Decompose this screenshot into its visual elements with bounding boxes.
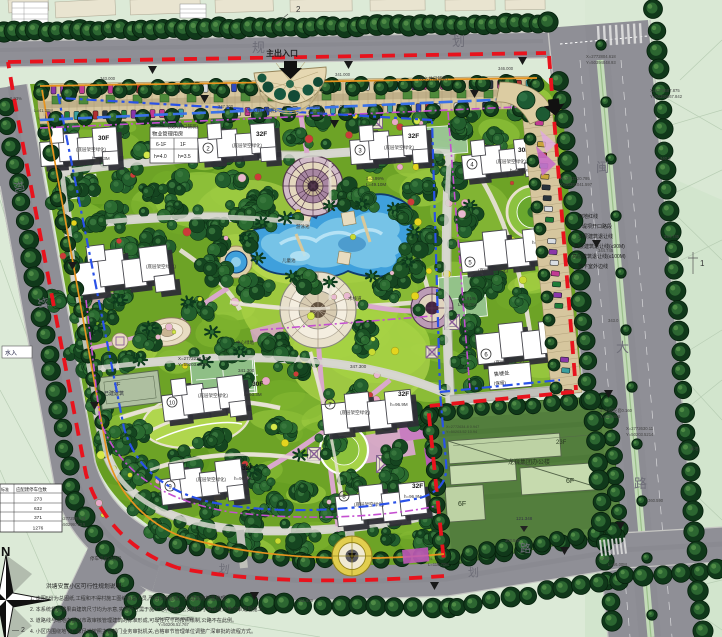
svg-text:121.348: 121.348 xyxy=(516,516,533,521)
svg-text:(底层架空绿化): (底层架空绿化) xyxy=(340,409,370,416)
svg-text:32F: 32F xyxy=(412,483,423,490)
svg-text:N: N xyxy=(1,544,10,559)
svg-text:h=93.3M: h=93.3M xyxy=(510,168,528,173)
svg-text:(底层架空绿化): (底层架空绿化) xyxy=(76,146,106,153)
svg-text:6F: 6F xyxy=(458,501,466,508)
svg-text:路: 路 xyxy=(520,542,531,555)
svg-text:344.745: 344.745 xyxy=(664,234,680,239)
svg-text:343.0: 343.0 xyxy=(608,318,619,323)
svg-text:(底层架空绿化): (底层架空绿化) xyxy=(232,142,262,149)
svg-text:343.000: 343.000 xyxy=(100,76,116,81)
svg-text:规: 规 xyxy=(252,40,265,55)
svg-text:30F: 30F xyxy=(98,135,109,142)
svg-text:L=66.00M: L=66.00M xyxy=(608,562,627,567)
svg-text:371: 371 xyxy=(34,515,42,521)
svg-text:划: 划 xyxy=(468,566,479,579)
svg-text:X=2772238.525: X=2772238.525 xyxy=(178,356,210,361)
svg-text:32F: 32F xyxy=(408,133,419,140)
svg-text:X=2772634.8 0.947: X=2772634.8 0.947 xyxy=(446,425,479,429)
svg-text:标准: 标准 xyxy=(1,486,9,492)
svg-text:高地: 高地 xyxy=(690,445,699,452)
svg-text:洪塘安置小区可行性规划说明:: 洪塘安置小区可行性规划说明: xyxy=(46,582,123,590)
svg-text:L=86.0m: L=86.0m xyxy=(458,302,476,307)
svg-text:(残入井口铺装): (残入井口铺装) xyxy=(418,75,448,82)
svg-text:L=49.10M: L=49.10M xyxy=(366,182,386,187)
svg-text:X=2772320.795: X=2772320.795 xyxy=(560,176,590,181)
svg-text:应配建停车位数: 应配建停车位数 xyxy=(16,486,47,493)
svg-text:6-1F: 6-1F xyxy=(156,142,166,148)
svg-text:堤坝开口路段: 堤坝开口路段 xyxy=(582,223,612,230)
svg-text:4=小区配套0.160: 4=小区配套0.160 xyxy=(600,407,633,414)
svg-text:地下室外边线: 地下室外边线 xyxy=(578,263,608,270)
svg-text:路: 路 xyxy=(634,476,647,491)
svg-text:362.540: 362.540 xyxy=(505,538,521,543)
svg-text:Y=50203.52 10.94: Y=50203.52 10.94 xyxy=(446,430,477,434)
svg-text:23F: 23F xyxy=(556,440,567,446)
svg-text:h=96.9M: h=96.9M xyxy=(234,476,252,481)
svg-text:Y=50394048.93: Y=50394048.93 xyxy=(586,60,616,65)
svg-text:(底层架空绿化): (底层架空绿化) xyxy=(198,392,228,399)
svg-text:(底层架空绿化): (底层架空绿化) xyxy=(196,476,226,483)
svg-text:水入: 水入 xyxy=(5,349,17,357)
svg-text:(底层架空绿化): (底层架空绿化) xyxy=(146,263,176,270)
svg-text:273: 273 xyxy=(34,497,42,503)
svg-text:32F: 32F xyxy=(242,465,253,472)
svg-text:1276: 1276 xyxy=(33,526,44,532)
svg-text:(底层架空绿化): (底层架空绿化) xyxy=(478,267,508,274)
svg-text:(底层架空绿化): (底层架空绿化) xyxy=(384,144,414,151)
svg-text:351.930: 351.930 xyxy=(298,598,314,603)
svg-text:用地红线: 用地红线 xyxy=(578,213,598,220)
svg-text:3. 道路线与场地内部以市政审核管理建筑的标准形成,可靠性尺: 3. 道路线与场地内部以市政审核管理建筑的标准形成,可靠性尺寸均按照绘制,公路不… xyxy=(30,617,237,624)
svg-text:1=1.91%: 1=1.91% xyxy=(458,296,476,301)
svg-text:32F: 32F xyxy=(398,391,409,398)
svg-text:2: 2 xyxy=(296,5,301,14)
svg-text:划: 划 xyxy=(218,562,231,576)
svg-text:(残入井口铺装): (残入井口铺装) xyxy=(168,123,198,130)
svg-text:340.0: 340.0 xyxy=(660,156,671,161)
svg-text:Y=50392041.597: Y=50392041.597 xyxy=(560,182,593,187)
svg-text:停车平台口路段: 停车平台口路段 xyxy=(90,555,122,562)
svg-text:已建建筑: 已建建筑 xyxy=(104,390,124,397)
svg-text:Y=50203.4532: Y=50203.4532 xyxy=(178,362,208,367)
svg-text:物业管理用房: 物业管理用房 xyxy=(152,130,183,138)
svg-text:划: 划 xyxy=(452,34,465,49)
svg-text:多层建筑退让线: 多层建筑退让线 xyxy=(578,233,613,240)
svg-text:高层建筑退让线(≤100M): 高层建筑退让线(≤100M) xyxy=(572,253,626,260)
svg-text:h=3.5: h=3.5 xyxy=(178,154,191,160)
svg-text:h=93.3M: h=93.3M xyxy=(244,392,262,397)
svg-text:346.000: 346.000 xyxy=(498,66,514,71)
svg-text:32F: 32F xyxy=(256,131,267,138)
svg-text:6.93%: 6.93% xyxy=(10,96,22,101)
svg-text:主出入口: 主出入口 xyxy=(266,48,298,58)
svg-text:1: 1 xyxy=(700,259,705,268)
svg-text:2. 本系统规划成果由建筑尺寸均为示意,实际尺寸需于施工地块: 2. 本系统规划成果由建筑尺寸均为示意,实际尺寸需于施工地块确定之,安装尺寸等由… xyxy=(30,606,268,613)
svg-text:(底层架空绿化): (底层架空绿化) xyxy=(496,158,526,165)
svg-text:h=93.3M: h=93.3M xyxy=(92,156,110,161)
svg-text:(主入井口铺装): (主入井口铺装) xyxy=(246,107,276,114)
svg-text:X=2772630.11: X=2772630.11 xyxy=(626,426,654,431)
svg-text:1=2.0%: 1=2.0% xyxy=(598,556,613,561)
svg-text:X=2772804.618: X=2772804.618 xyxy=(586,54,616,59)
svg-text:大: 大 xyxy=(616,340,629,355)
svg-text:341.000: 341.000 xyxy=(335,72,351,77)
svg-text:h=96.9M: h=96.9M xyxy=(404,494,422,499)
svg-text:儿童池: 儿童池 xyxy=(282,257,296,264)
svg-text:1. 本图5份为总图纸,工程和不得村施工图纸每总人员,严格按: 1. 本图5份为总图纸,工程和不得村施工图纸每总人员,严格按照图纸厂放'建筑物范… xyxy=(30,595,231,602)
svg-text:30F: 30F xyxy=(252,381,263,388)
svg-text:L=116.70M: L=116.70M xyxy=(428,562,449,567)
svg-text:1=3.5%: 1=3.5% xyxy=(308,104,323,109)
svg-text:6F: 6F xyxy=(566,478,574,485)
svg-text:L=73.5M: L=73.5M xyxy=(308,110,325,115)
svg-text:347.300: 347.300 xyxy=(350,364,367,369)
svg-text:L=41.30M: L=41.30M xyxy=(34,108,53,113)
svg-text:10: 10 xyxy=(169,401,175,407)
svg-text:木栈道: 木栈道 xyxy=(348,295,362,302)
svg-text:632: 632 xyxy=(34,506,42,512)
svg-text:Y=500.848: Y=500.848 xyxy=(600,414,621,419)
svg-text:360.590: 360.590 xyxy=(648,498,664,503)
svg-text:中心绿地: 中心绿地 xyxy=(236,339,254,346)
svg-text:1=3.99%: 1=3.99% xyxy=(366,176,384,181)
svg-text:341.300: 341.300 xyxy=(238,368,255,373)
svg-text:1F: 1F xyxy=(180,142,186,148)
svg-text:龙巍集团办公楼: 龙巍集团办公楼 xyxy=(508,458,550,466)
svg-text:h=96.9M: h=96.9M xyxy=(390,402,408,407)
svg-text:游泳池: 游泳池 xyxy=(296,223,310,230)
svg-text:h=4.0: h=4.0 xyxy=(154,154,167,160)
svg-text:X=2772587.875: X=2772587.875 xyxy=(650,88,680,93)
svg-text:347.300: 347.300 xyxy=(218,104,234,109)
svg-text:闽: 闽 xyxy=(596,160,609,175)
svg-text:Y=50203.5214: Y=50203.5214 xyxy=(626,432,654,437)
svg-text:高层建筑退让线(≤90M): 高层建筑退让线(≤90M) xyxy=(574,243,625,250)
svg-text:Y=50395667.842: Y=50395667.842 xyxy=(650,94,683,99)
svg-text:— 2: — 2 xyxy=(12,627,25,634)
svg-text:4. 小区内围绕地下广深尺寸按照主管部门业务审批机关,合格审: 4. 小区内围绕地下广深尺寸按照主管部门业务审批机关,合格审节管理单位调整广深审… xyxy=(30,628,256,635)
